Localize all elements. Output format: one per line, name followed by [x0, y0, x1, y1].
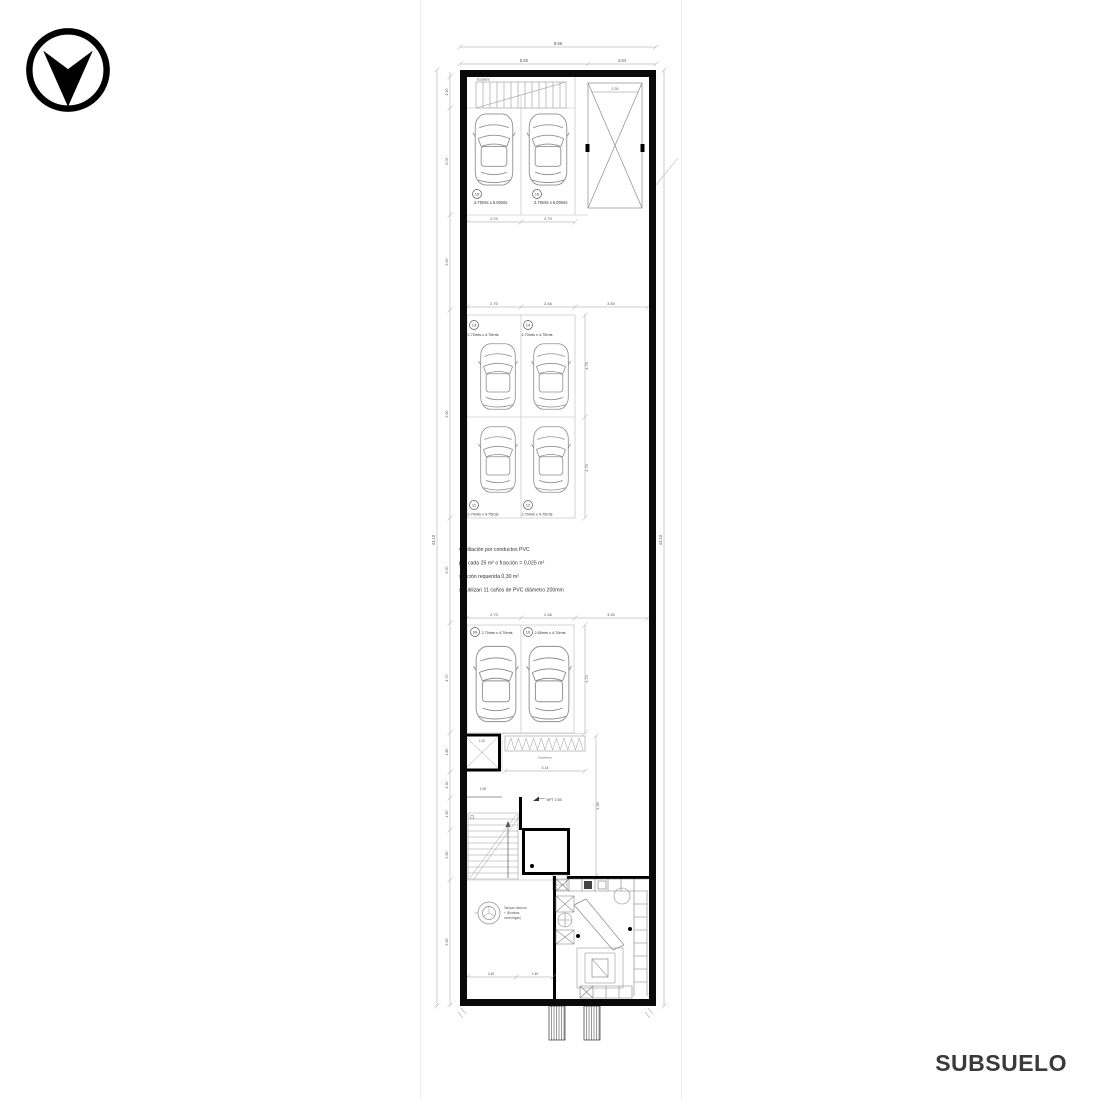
dim-line-middle: 2.70 2.46 3.50 [465, 301, 651, 310]
tank-label: Tanque cisterna + (Bombas centrífugas) [504, 906, 527, 920]
stair-top-label: Escalera [477, 78, 490, 82]
stall-label-09: 09 2.70mts x 4.70mts [471, 628, 513, 637]
machine-unit [577, 948, 623, 988]
car-lift-shaft: 2.30 [586, 83, 645, 208]
dim-mid-a: 2.70 [490, 301, 499, 306]
car-16 [527, 114, 569, 185]
stall-num-14: 14 [526, 323, 531, 328]
dim-right-overall: 43.10 [658, 534, 663, 545]
dim-row-top-a: 2.70 [490, 216, 499, 221]
vent-note-line-3: sección requerida 0,30 m² [459, 574, 519, 580]
stall-label-11: 11 2.70mts x 4.75mts [468, 501, 499, 517]
bike-rack-label: bicicletero [538, 756, 552, 760]
stall-size-09: 2.70mts x 4.70mts [482, 631, 513, 635]
stall-label-15: 15 2.70mts x 6.00mts [473, 190, 508, 206]
dim-depth-b: 4.75 [585, 464, 589, 471]
stall-label-14: 14 2.70mts x 4.75mts [522, 321, 553, 338]
stall-size-15: 2.70mts x 6.00mts [474, 200, 507, 205]
vent-shafts-bottom [458, 1006, 653, 1040]
vent-note-line-2: por cada 25 m² o fracción = 0,025 m² [459, 561, 544, 567]
stall-label-16: 16 2.70mts x 6.00mts [533, 190, 568, 206]
walled-room [522, 828, 570, 890]
machine-room [553, 876, 649, 999]
dim-low-a: 2.70 [490, 612, 499, 617]
lower-stairs [468, 813, 519, 880]
stall-size-13: 2.70mts x 4.75mts [468, 333, 499, 337]
dim-left-1: 1.20 [445, 88, 449, 95]
page-title: SUBSUELO [935, 1050, 1067, 1077]
stall-num-12: 12 [526, 503, 531, 508]
dim-stair-lobby: 1.50 [480, 787, 487, 791]
dim-left-11: 5.90 [445, 938, 449, 945]
outer-walls [460, 70, 656, 1006]
dim-bike: 3.14 [542, 766, 549, 770]
stall-num-13: 13 [472, 323, 477, 328]
vent-note-line-4: se utilizan 11 caños de PVC diámetro 200… [459, 588, 564, 594]
screenshot-canvas: SUBSUELO 8.66 [0, 0, 1100, 1100]
dim-left-10: 2.50 [445, 851, 449, 858]
dim-left-3: 3.00 [445, 258, 449, 265]
stall-size-11: 2.70mts x 4.75mts [468, 513, 499, 517]
tank-label-line-1: Tanque cisterna [504, 906, 527, 910]
dim-left-7: 1.80 [445, 748, 449, 755]
tank-room: Tanque cisterna + (Bombas centrífugas) 2… [465, 880, 556, 980]
stall-label-13: 13 2.70mts x 4.75mts [468, 321, 499, 338]
dim-low-c: 3.30 [607, 612, 616, 617]
ventilation-note: ventilación por conductos PVC por cada 2… [459, 547, 564, 594]
stall-size-14: 2.70mts x 4.75mts [522, 333, 553, 337]
car-12 [531, 427, 570, 493]
dim-line-lower: 2.70 2.46 3.30 [465, 612, 651, 621]
car-14 [531, 344, 570, 410]
dim-tank-b: 1.40 [532, 972, 539, 976]
dim-depth-c: 4.70 [585, 675, 589, 682]
dim-top-seg-b: 2.84 [618, 58, 627, 63]
stall-label-10: 10 2.65mts x 4.70mts [524, 628, 566, 637]
car-09 [474, 646, 519, 721]
car-10 [527, 646, 572, 721]
stall-size-16: 2.70mts x 6.00mts [534, 200, 567, 205]
dim-aisle-v: 4.30 [596, 802, 600, 809]
dim-left-6: 4.70 [445, 674, 449, 681]
duct [574, 899, 624, 950]
brand-logo [22, 24, 114, 116]
dim-left-8: 1.30 [445, 781, 449, 788]
npt-label: NPT 2.55 [547, 798, 562, 802]
dim-left-overall: 43.10 [431, 534, 436, 545]
elevator-shaft: 1.20 [465, 735, 500, 770]
parking-row-lower: 09 2.70mts x 4.70mts 10 2.65mts x 4.70mt… [467, 623, 589, 736]
parking-block-middle: 13 2.70mts x 4.75mts 14 2.70mts x 4.75mt… [467, 313, 589, 521]
tank-label-line-3: centrífugas) [504, 916, 521, 920]
vent-note-line-1: ventilación por conductos PVC [459, 547, 530, 553]
dim-tank-a: 2.40 [488, 972, 495, 976]
tank-label-line-2: + (Bombas [504, 911, 520, 915]
dim-elevator-width: 1.20 [479, 739, 485, 743]
stall-num-16: 16 [535, 192, 540, 197]
car-11 [478, 427, 517, 493]
dim-row-top-b: 2.70 [544, 216, 553, 221]
dim-depth-a: 4.75 [585, 362, 589, 369]
stall-label-12: 12 2.70mts x 4.75mts [522, 501, 553, 517]
stall-size-10: 2.65mts x 4.70mts [535, 631, 566, 635]
dim-left-5: 5.00 [445, 566, 449, 573]
dim-top-seg-a: 5.82 [520, 58, 529, 63]
dim-left-4: 9.50 [445, 410, 449, 417]
dim-mid-c: 3.50 [607, 301, 616, 306]
dim-mid-b: 2.46 [544, 301, 553, 306]
stall-num-15: 15 [475, 192, 480, 197]
vestibule-zone: 1.50 NPT 2.55 4.30 [467, 734, 600, 879]
floor-plan: 8.66 5.82 2.84 1.20 6.00 3.00 9.50 5.0 [420, 30, 700, 1060]
car-13 [478, 344, 517, 410]
dim-left-9: 1.50 [445, 810, 449, 817]
car-15 [473, 114, 515, 185]
npt-marker: NPT 2.55 [533, 797, 562, 802]
dim-low-b: 2.46 [544, 612, 553, 617]
cistern-tank [474, 902, 500, 924]
stall-num-09: 09 [473, 630, 478, 635]
stall-num-10: 10 [526, 630, 531, 635]
dim-left-2: 6.00 [445, 157, 449, 164]
dim-top-overall: 8.66 [554, 41, 563, 46]
dim-lift-width: 2.30 [612, 87, 619, 91]
down-arrow-logo-icon [22, 24, 114, 116]
stall-size-12: 2.70mts x 4.75mts [522, 513, 553, 517]
